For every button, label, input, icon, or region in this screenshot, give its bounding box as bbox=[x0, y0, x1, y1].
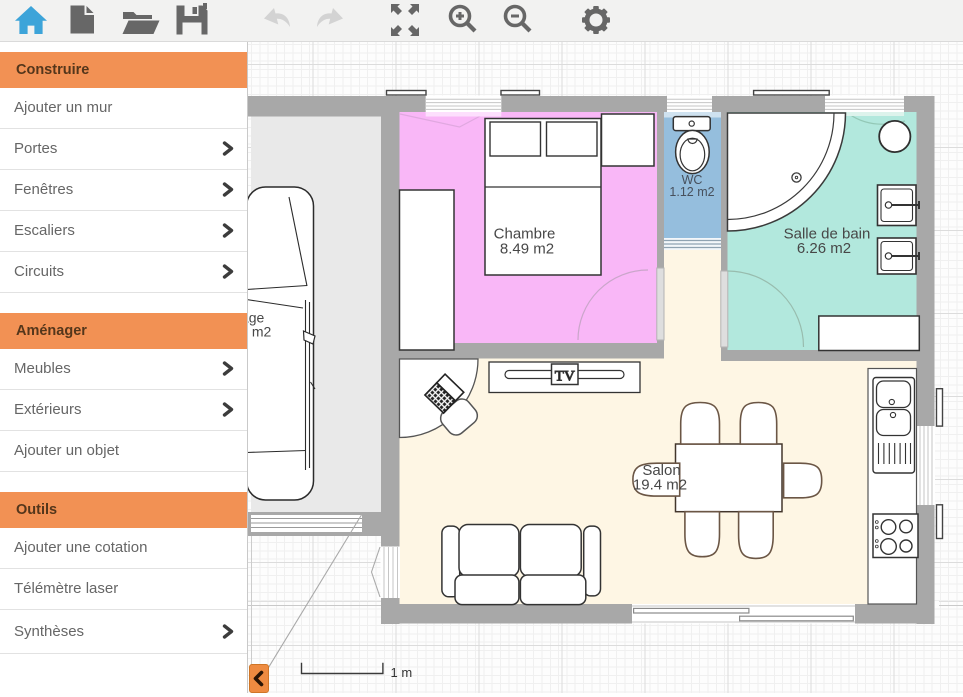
svg-text:1 m: 1 m bbox=[391, 665, 413, 680]
svg-text:19.4 m2: 19.4 m2 bbox=[633, 477, 687, 494]
svg-text:TV: TV bbox=[555, 369, 575, 385]
svg-text:6.26 m2: 6.26 m2 bbox=[797, 240, 851, 257]
svg-text:1.12 m2: 1.12 m2 bbox=[669, 185, 714, 199]
svg-text:8.49 m2: 8.49 m2 bbox=[500, 241, 554, 258]
